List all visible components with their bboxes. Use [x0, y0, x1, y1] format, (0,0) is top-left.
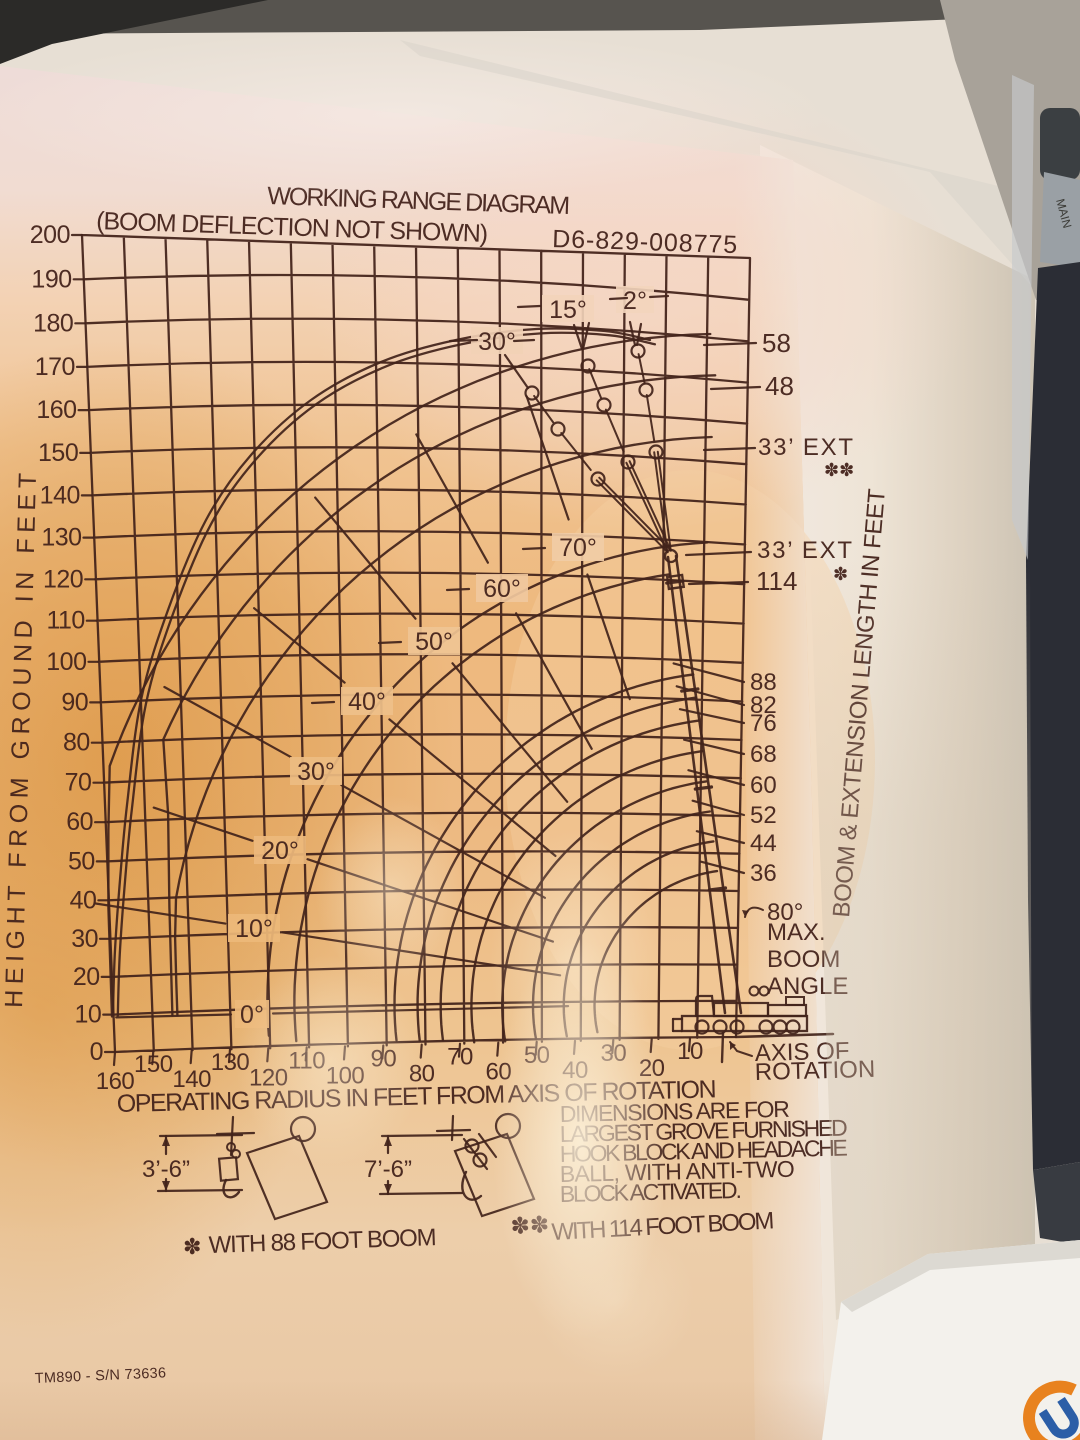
svg-text:30: 30: [71, 925, 98, 953]
svg-text:60°: 60°: [483, 575, 521, 603]
svg-text:10: 10: [677, 1038, 703, 1065]
svg-text:100: 100: [46, 648, 86, 676]
svg-text:70°: 70°: [559, 534, 597, 562]
svg-text:150: 150: [38, 439, 78, 467]
svg-text:190: 190: [31, 265, 71, 293]
svg-text:90: 90: [61, 688, 88, 716]
svg-text:30°: 30°: [478, 328, 516, 356]
svg-text:10: 10: [75, 1001, 102, 1029]
svg-text:130: 130: [41, 524, 81, 552]
svg-text:40°: 40°: [348, 688, 386, 716]
svg-text:MAX.: MAX.: [767, 919, 826, 946]
svg-text:48: 48: [765, 371, 794, 401]
svg-text:40: 40: [70, 886, 97, 914]
svg-text:20: 20: [73, 963, 100, 991]
svg-text:30°: 30°: [297, 758, 335, 786]
svg-text:60: 60: [66, 808, 93, 836]
svg-text:2°: 2°: [623, 287, 647, 315]
svg-text:170: 170: [35, 353, 75, 381]
svg-text:33’ EXT: 33’ EXT: [757, 537, 852, 564]
svg-text:10°: 10°: [235, 915, 273, 943]
svg-text:160: 160: [36, 396, 76, 424]
svg-text:114: 114: [756, 566, 797, 596]
svg-text:76: 76: [750, 710, 777, 737]
svg-text:52: 52: [750, 802, 777, 829]
svg-text:44: 44: [750, 830, 777, 857]
svg-text:180: 180: [33, 309, 73, 337]
svg-text:✽: ✽: [183, 1234, 201, 1259]
svg-text:20°: 20°: [261, 837, 299, 865]
svg-text:200: 200: [30, 221, 70, 249]
svg-text:50°: 50°: [415, 628, 453, 656]
svg-text:50: 50: [68, 847, 95, 875]
svg-text:15°: 15°: [549, 296, 587, 324]
svg-text:58: 58: [762, 328, 791, 358]
svg-text:110: 110: [46, 607, 84, 635]
svg-text:150: 150: [134, 1051, 173, 1078]
svg-text:80: 80: [63, 729, 90, 757]
svg-text:68: 68: [750, 741, 777, 768]
svg-text:120: 120: [43, 565, 83, 593]
svg-text:3’-6”: 3’-6”: [142, 1156, 190, 1183]
svg-text:70: 70: [447, 1044, 473, 1071]
svg-text:33’ EXT: 33’ EXT: [758, 434, 853, 461]
svg-text:60: 60: [750, 772, 777, 799]
svg-text:36: 36: [750, 860, 777, 887]
svg-text:70: 70: [65, 769, 92, 797]
svg-text:0: 0: [90, 1038, 103, 1066]
svg-text:7’-6”: 7’-6”: [364, 1156, 412, 1183]
svg-text:140: 140: [40, 481, 80, 509]
svg-text:✽✽: ✽✽: [824, 460, 854, 480]
